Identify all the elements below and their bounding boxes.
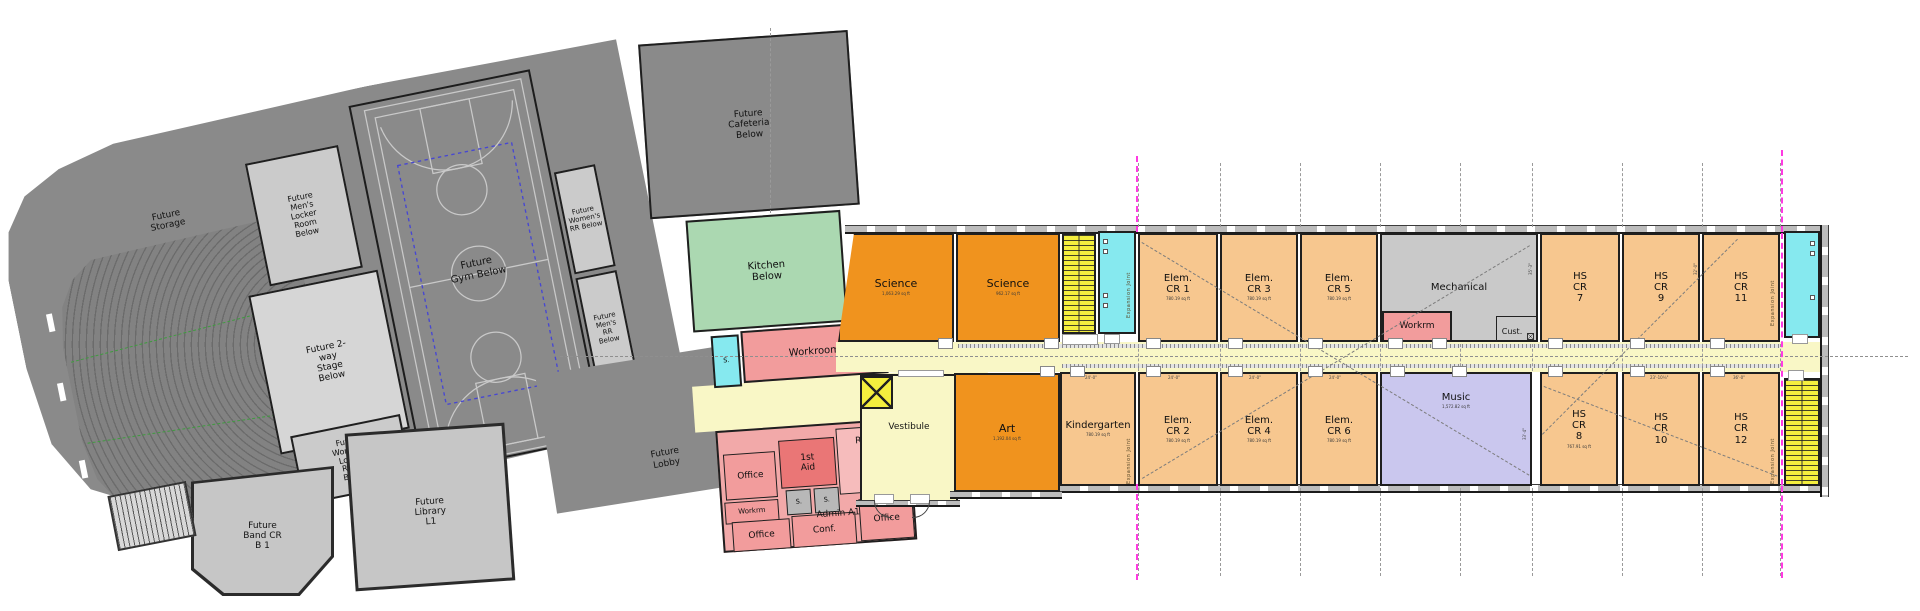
art-south-wall bbox=[950, 491, 1062, 499]
label-cust: Cust. bbox=[1492, 318, 1532, 336]
door-gap bbox=[1388, 338, 1403, 349]
room-kindergarten: Kindergarten 780.19 sq ft bbox=[1060, 372, 1136, 486]
label-vestibule: Vestibule bbox=[866, 412, 952, 433]
grid-line bbox=[1300, 344, 1301, 371]
dim-label: 24'-0" bbox=[1249, 375, 1261, 380]
room-science-2: Science 962.17 sq ft bbox=[956, 233, 1060, 342]
grid-line bbox=[1138, 163, 1139, 227]
room-elem-cr-3: Elem. CR 3 780.19 sq ft bbox=[1220, 233, 1298, 342]
fixture bbox=[1810, 251, 1815, 256]
fixture bbox=[1103, 303, 1108, 308]
door-gap bbox=[1228, 366, 1243, 377]
grid-line bbox=[1532, 344, 1533, 371]
label-library: Future Library L1 bbox=[413, 485, 447, 528]
dim-label: 24'-0" bbox=[1085, 375, 1097, 380]
restroom-north-b bbox=[1784, 231, 1820, 338]
fixture bbox=[1810, 241, 1815, 246]
door-gap bbox=[1548, 338, 1563, 349]
expansion-joint-label: Expansion Joint bbox=[1770, 248, 1776, 326]
grid-line bbox=[1460, 163, 1461, 227]
grid-line bbox=[1702, 163, 1703, 227]
room-office-sw: Office bbox=[732, 518, 792, 552]
grid-line bbox=[1380, 163, 1381, 227]
room-storage-s: S. bbox=[711, 334, 743, 388]
dim-label: 24'-0" bbox=[1329, 375, 1341, 380]
locker-strip bbox=[1062, 364, 1780, 368]
expansion-joint-label: Expansion Joint bbox=[1126, 406, 1132, 484]
door-gap bbox=[1228, 338, 1243, 349]
centerline bbox=[560, 356, 1908, 357]
grid-line bbox=[1622, 488, 1623, 576]
room-hs-cr-7: HS CR 7 bbox=[1540, 233, 1620, 342]
vestibule-south-wall bbox=[856, 500, 960, 507]
floor-plan: Future Storage Future Men's Locker Room … bbox=[0, 0, 1920, 611]
room-future-cafeteria: Future Cafeteria Below bbox=[638, 30, 860, 219]
room-music: Music 1,572.82 sq ft bbox=[1380, 372, 1532, 486]
stairs-southeast bbox=[1784, 378, 1820, 486]
dim-label: 35'-3" bbox=[1528, 245, 1533, 275]
grid-line bbox=[1702, 344, 1703, 371]
elevator bbox=[860, 376, 893, 409]
grid-line bbox=[1300, 488, 1301, 576]
room-first-aid: 1st Aid bbox=[778, 437, 837, 489]
grid-line bbox=[1380, 344, 1381, 371]
door-gap bbox=[1548, 366, 1563, 377]
room-art: Art 1,192.04 sq ft bbox=[954, 373, 1060, 492]
grid-line bbox=[1532, 488, 1533, 576]
door-gap bbox=[1146, 338, 1161, 349]
fixture bbox=[1103, 293, 1108, 298]
door-gap bbox=[898, 370, 944, 377]
grid-line bbox=[1220, 344, 1221, 371]
label-band-cr: Future Band CR B 1 bbox=[243, 510, 282, 551]
room-office-nw: Office bbox=[723, 451, 778, 501]
door-gap bbox=[1040, 366, 1055, 377]
expansion-joint bbox=[1136, 484, 1138, 580]
room-elem-cr-2: Elem. CR 2 780.19 sq ft bbox=[1138, 372, 1218, 486]
door-gap bbox=[1308, 338, 1323, 349]
room-kitchen: Kitchen Below bbox=[685, 210, 847, 333]
grid-line bbox=[1622, 344, 1623, 371]
room-hs-cr-10: HS CR 10 bbox=[1622, 372, 1700, 486]
grid-line bbox=[1380, 488, 1381, 576]
door-gap bbox=[1062, 334, 1098, 345]
grid-line bbox=[1460, 488, 1461, 576]
expansion-joint-label: Expansion Joint bbox=[1126, 240, 1132, 318]
expansion-joint-label: Expansion Joint bbox=[1770, 406, 1776, 484]
grid-line bbox=[1138, 344, 1139, 371]
floor-drain bbox=[1527, 333, 1534, 340]
grid-line bbox=[1220, 488, 1221, 576]
stairs-north bbox=[1062, 233, 1096, 334]
room-future-band-cr: Future Band CR B 1 bbox=[194, 469, 331, 593]
dim-label: 33'-4" bbox=[1522, 410, 1527, 440]
door-gap bbox=[1452, 366, 1467, 377]
door-gap bbox=[938, 338, 953, 349]
room-elem-cr-1: Elem. CR 1 780.19 sq ft bbox=[1138, 233, 1218, 342]
door-gap bbox=[1630, 366, 1645, 377]
fixture bbox=[1103, 239, 1108, 244]
east-exterior-wall bbox=[1820, 225, 1829, 497]
grid-line bbox=[1138, 488, 1139, 576]
door-gap bbox=[1308, 366, 1323, 377]
expansion-joint bbox=[1781, 233, 1783, 485]
dim-label: 23'-10¼" bbox=[1650, 375, 1668, 380]
room-hs-cr-12: HS CR 12 bbox=[1702, 372, 1780, 486]
room-science-1: Science 1,063.29 sq ft bbox=[838, 233, 954, 342]
grid-line bbox=[1300, 163, 1301, 227]
door-gap bbox=[1070, 366, 1085, 377]
fixture bbox=[1103, 249, 1108, 254]
room-elem-cr-4: Elem. CR 4 780.19 sq ft bbox=[1220, 372, 1298, 486]
door-gap bbox=[1044, 338, 1059, 349]
expansion-joint bbox=[1136, 156, 1138, 232]
grid-line bbox=[770, 28, 771, 213]
room-elem-cr-5: Elem. CR 5 780.19 sq ft bbox=[1300, 233, 1378, 342]
door-gap bbox=[1630, 338, 1645, 349]
room-future-library: Future Library L1 bbox=[348, 426, 512, 588]
expansion-joint bbox=[1781, 486, 1783, 578]
door-gap bbox=[1710, 366, 1725, 377]
door-gap bbox=[1104, 334, 1120, 344]
door-gap bbox=[1710, 338, 1725, 349]
grid-line bbox=[1702, 488, 1703, 576]
dim-label: 24'-0" bbox=[1168, 375, 1180, 380]
room-elem-cr-6: Elem. CR 6 780.19 sq ft bbox=[1300, 372, 1378, 486]
fixture bbox=[1810, 295, 1815, 300]
room-future-band-cr-outer: Future Band CR B 1 bbox=[191, 466, 334, 596]
door-gap bbox=[1788, 370, 1804, 381]
door-gap bbox=[1146, 366, 1161, 377]
grid-line bbox=[1220, 163, 1221, 227]
room-hs-cr-11: HS CR 11 bbox=[1702, 233, 1780, 342]
room-future-library-outer: Future Library L1 bbox=[345, 423, 516, 592]
grid-line bbox=[1622, 163, 1623, 227]
door-gap bbox=[1432, 338, 1447, 349]
dim-label: 36'-0" bbox=[1733, 375, 1745, 380]
grid-line bbox=[1532, 163, 1533, 227]
expansion-joint bbox=[1781, 150, 1783, 232]
dim-label: 32'-0" bbox=[1693, 245, 1698, 275]
door-gap bbox=[1792, 334, 1808, 344]
door-gap bbox=[1390, 366, 1405, 377]
